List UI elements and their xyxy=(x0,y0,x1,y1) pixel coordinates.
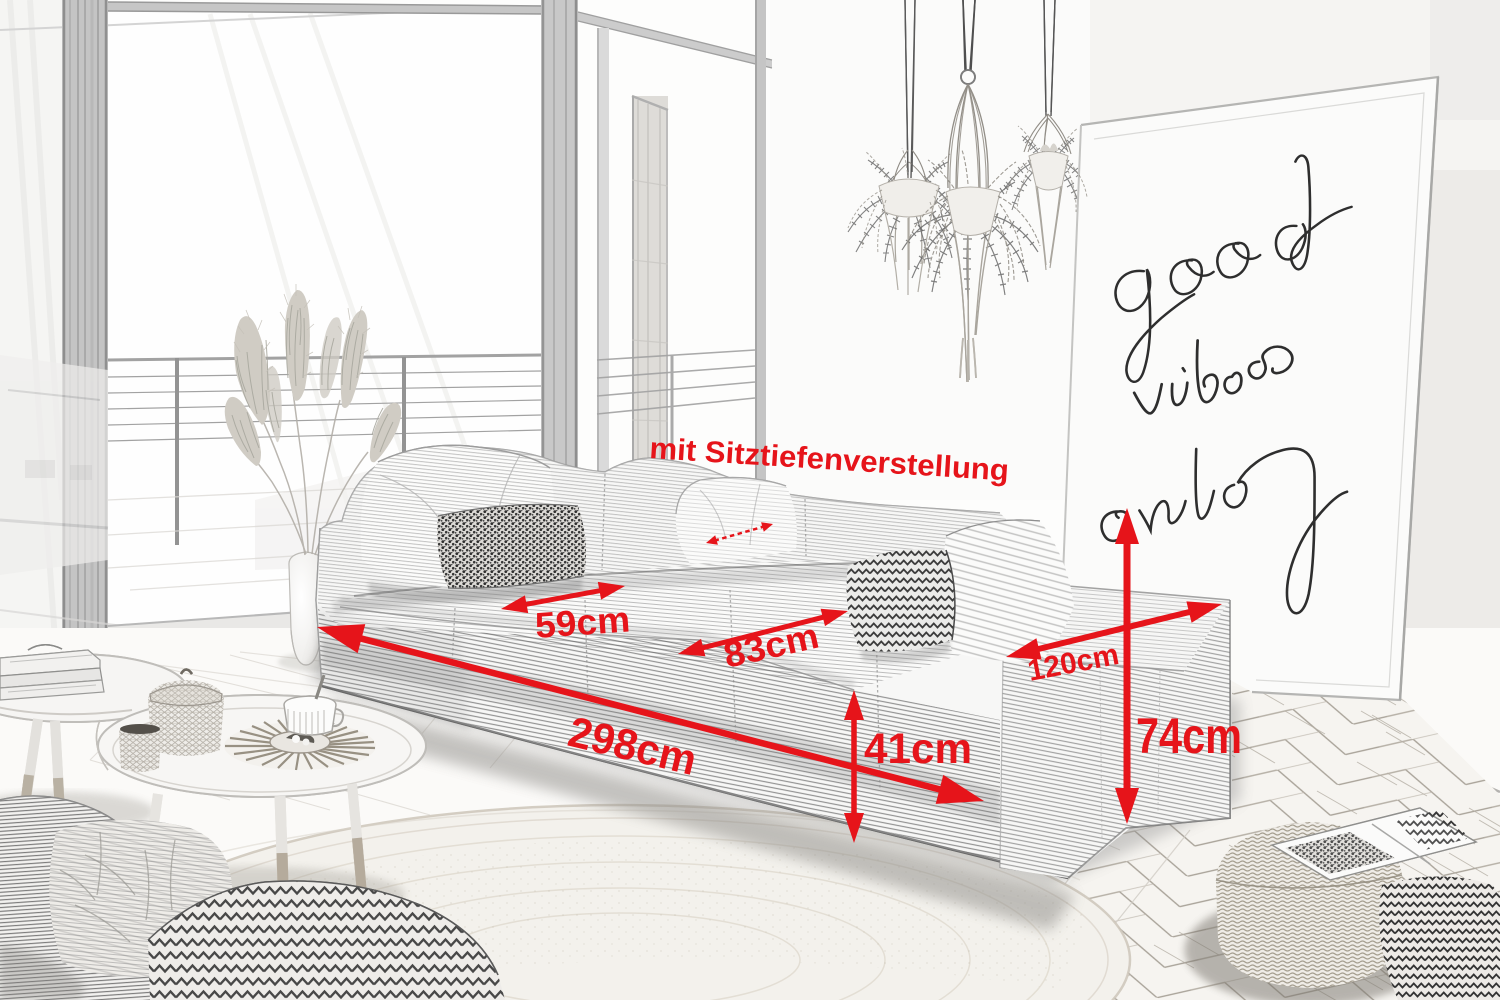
svg-text:59cm: 59cm xyxy=(534,598,632,646)
svg-text:41cm: 41cm xyxy=(864,725,972,773)
svg-text:74cm: 74cm xyxy=(1136,708,1242,764)
